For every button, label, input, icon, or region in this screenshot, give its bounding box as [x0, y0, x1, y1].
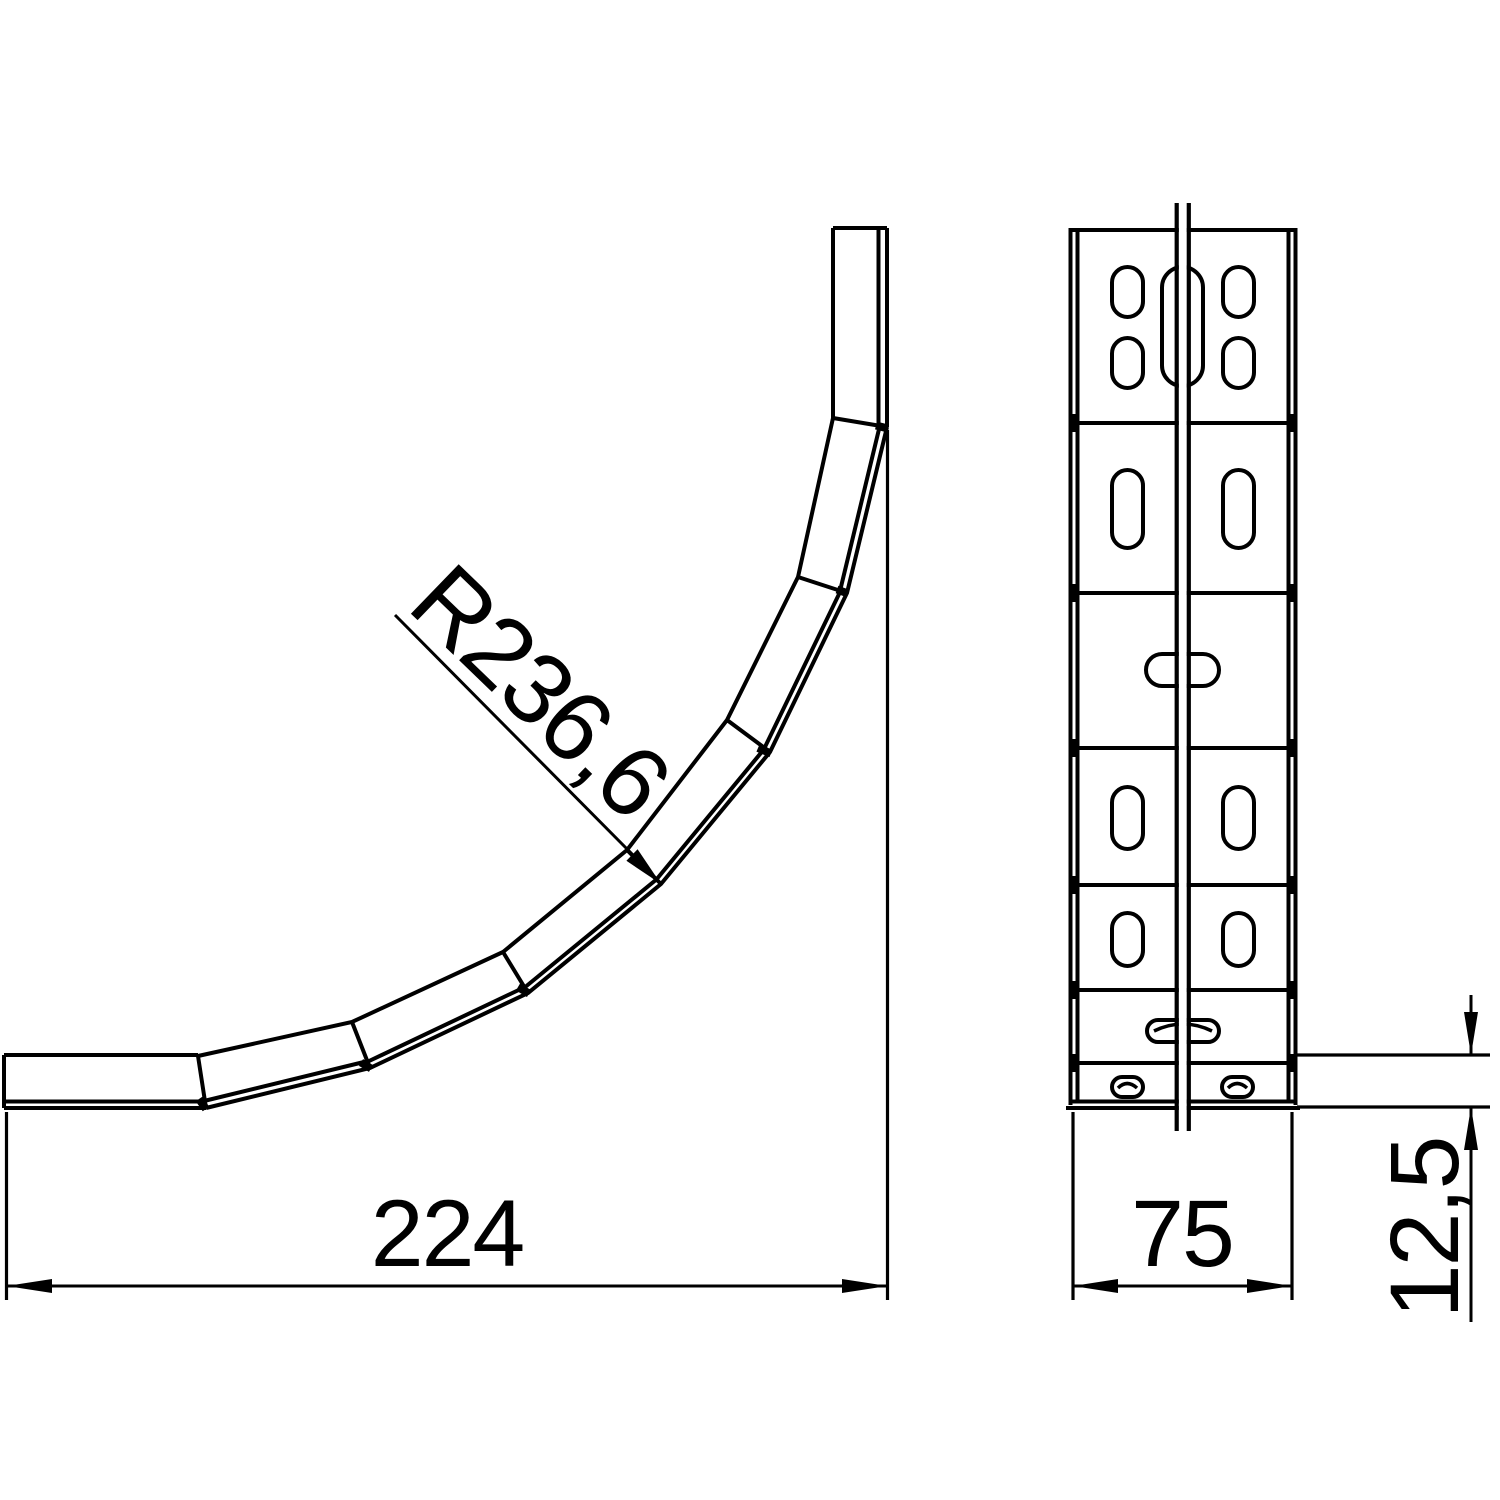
slot-hole [1223, 470, 1254, 548]
slot-lip [1228, 1084, 1247, 1089]
length-dimension: 224 [7, 430, 888, 1300]
width-dimension: 75 [1073, 1112, 1292, 1300]
length-dimension-label: 224 [371, 1181, 524, 1287]
side-view: R236,6 224 [4, 228, 888, 1300]
slot-hole [1223, 338, 1254, 388]
length-arrow-right-icon [842, 1279, 888, 1293]
technical-drawing-canvas: R236,6 224 [0, 0, 1500, 1500]
front-view: 75 12,5 [1066, 203, 1490, 1322]
slot-hole [1112, 338, 1143, 388]
slot-hole [1112, 913, 1143, 966]
radius-dimension-label: R236,6 [390, 543, 691, 839]
center-rod-body [1179, 203, 1187, 1131]
slot-hole [1223, 913, 1254, 966]
flange-height-dimension: 12,5 [1297, 995, 1490, 1322]
slot-hole [1112, 470, 1143, 548]
slot-lip [1118, 1084, 1137, 1089]
length-arrow-left-icon [7, 1279, 53, 1293]
flange-extension-lines [1297, 1055, 1490, 1107]
flange-height-dimension-label: 12,5 [1370, 1138, 1479, 1319]
slot-hole [1223, 787, 1254, 849]
length-extension-lines [7, 430, 888, 1300]
slot-hole-flat [1222, 1077, 1253, 1097]
technical-drawing: R236,6 224 [0, 0, 1500, 1500]
slot-hole-flat [1112, 1077, 1143, 1097]
flange-arrow-top-icon [1464, 1012, 1478, 1055]
slot-hole [1223, 267, 1254, 317]
slot-hole [1112, 787, 1143, 849]
width-dimension-label: 75 [1131, 1181, 1233, 1287]
center-rod [1177, 203, 1189, 1131]
slot-hole [1112, 267, 1143, 317]
width-arrow-left-icon [1073, 1279, 1118, 1293]
width-arrow-right-icon [1247, 1279, 1292, 1293]
